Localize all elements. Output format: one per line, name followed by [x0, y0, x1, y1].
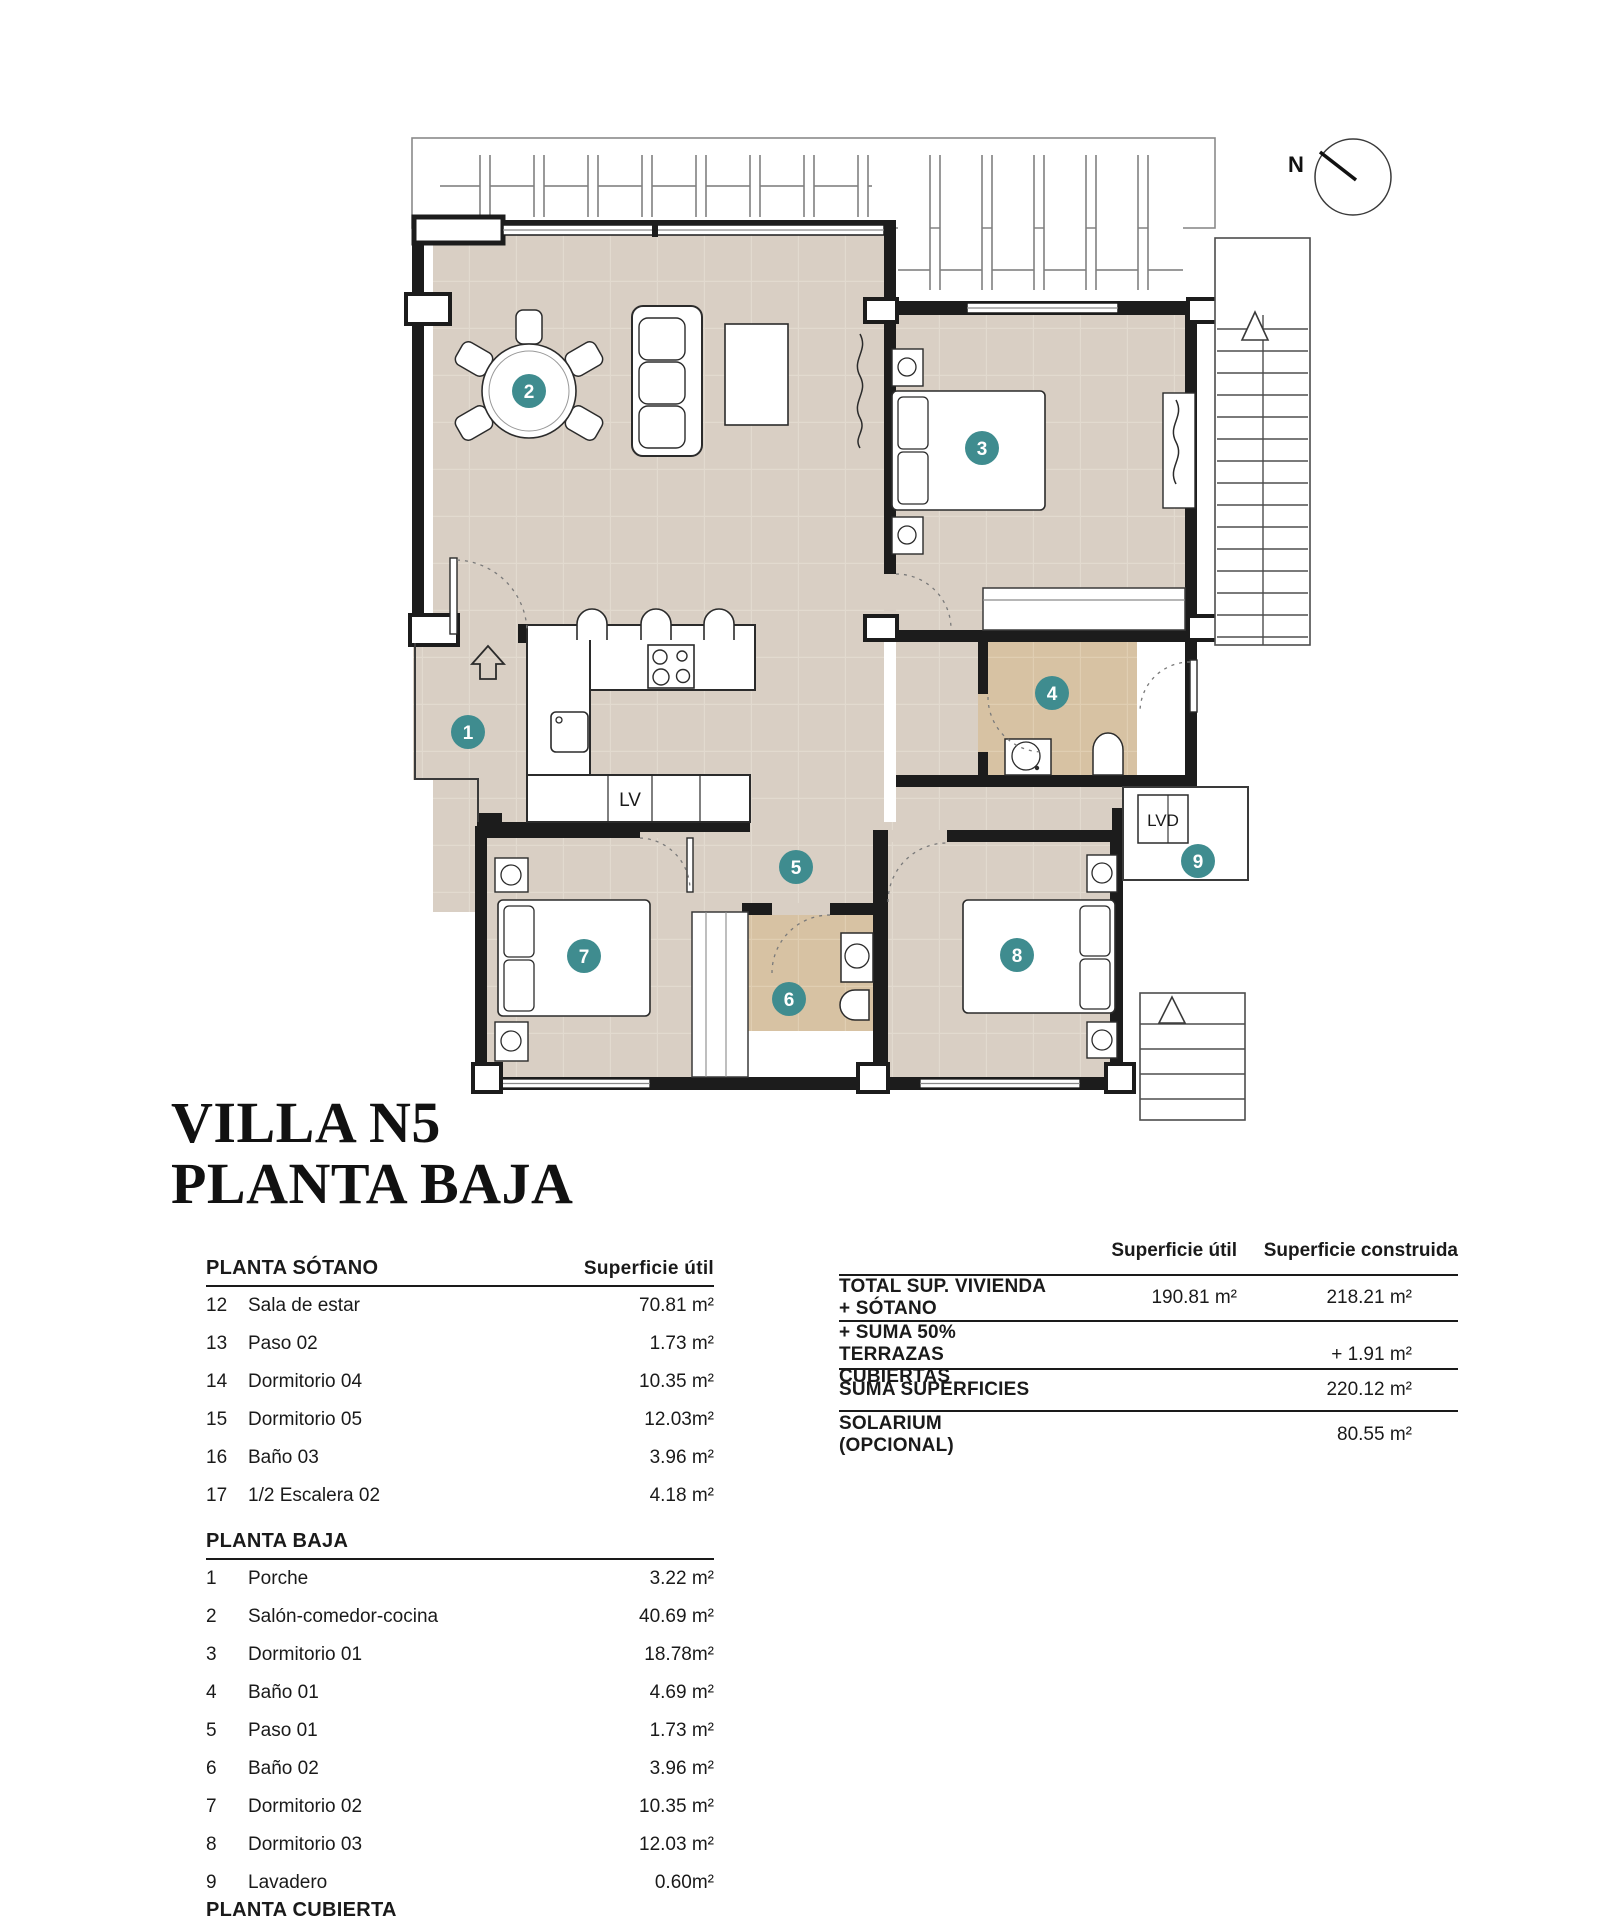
badge-room-1: 1 — [451, 715, 485, 749]
svg-text:2: 2 — [524, 382, 535, 403]
floorplan-page: LV — [0, 0, 1614, 1920]
compass-icon: N — [1288, 139, 1391, 215]
section-header-baja: PLANTA BAJA — [206, 1515, 714, 1560]
badge-room-4: 4 — [1035, 676, 1069, 710]
stairs-upper — [1215, 238, 1310, 645]
svg-text:5: 5 — [791, 858, 802, 879]
table-row: 4Baño 014.69 m² — [206, 1674, 714, 1712]
table-row: 9Lavadero0.60m² — [206, 1864, 714, 1902]
summary-header: Superficie útil Superficie construida — [839, 1240, 1458, 1276]
summary-row-solarium: SOLARIUM (OPCIONAL) 80.55 m² — [839, 1412, 1458, 1458]
table-row: 15Dormitorio 0512.03m² — [206, 1401, 714, 1439]
toilet — [1093, 733, 1123, 775]
svg-text:9: 9 — [1193, 852, 1204, 873]
title-line-1: VILLA N5 — [171, 1092, 573, 1153]
table-row: 3Dormitorio 0118.78m² — [206, 1636, 714, 1674]
wardrobe-strip — [692, 912, 748, 1077]
section-title: PLANTA SÓTANO — [206, 1257, 378, 1280]
porch-floor — [413, 643, 527, 780]
table-row: 13Paso 021.73 m² — [206, 1325, 714, 1363]
section-header-sotano: PLANTA SÓTANO Superficie útil — [206, 1240, 714, 1287]
badge-room-7: 7 — [567, 939, 601, 973]
table-row: 6Baño 023.96 m² — [206, 1750, 714, 1788]
badge-room-5: 5 — [779, 850, 813, 884]
table-row: 1Porche3.22 m² — [206, 1560, 714, 1598]
table-row: 16Baño 033.96 m² — [206, 1439, 714, 1477]
badge-room-6: 6 — [772, 982, 806, 1016]
svg-text:3: 3 — [977, 439, 988, 460]
section-title: PLANTA BAJA — [206, 1530, 348, 1553]
north-label: N — [1288, 152, 1304, 177]
svg-text:4: 4 — [1047, 684, 1058, 705]
washer-label: LVD — [1147, 811, 1179, 830]
pergola-slats-right — [898, 155, 1183, 290]
section-header-cubierta: PLANTA CUBIERTA — [206, 1902, 714, 1920]
page-title: VILLA N5 PLANTA BAJA — [171, 1092, 573, 1214]
table-row: 8Dormitorio 0312.03 m² — [206, 1826, 714, 1864]
dishwasher-label: LV — [619, 790, 641, 811]
svg-text:1: 1 — [463, 723, 474, 744]
table-row: 2Salón-comedor-cocina40.69 m² — [206, 1598, 714, 1636]
svg-text:6: 6 — [784, 990, 795, 1011]
bath-02 — [840, 933, 873, 1020]
table-row: 5Paso 011.73 m² — [206, 1712, 714, 1750]
badge-room-2: 2 — [512, 374, 546, 408]
stairs-lower — [1140, 993, 1245, 1120]
pergola-slats-left — [440, 155, 872, 217]
floor-plan: LV — [0, 0, 1614, 1185]
column-header-util: Superficie útil — [584, 1258, 714, 1280]
svg-text:7: 7 — [579, 947, 590, 968]
summary-row-terrazas: + SUMA 50% TERRAZAS CUBIERTAS + 1.91 m² — [839, 1322, 1458, 1370]
table-row: 171/2 Escalera 024.18 m² — [206, 1477, 714, 1515]
areas-table: PLANTA SÓTANO Superficie útil 12Sala de … — [206, 1240, 714, 1920]
badge-room-9: 9 — [1181, 844, 1215, 878]
column-header-util: Superficie útil — [1058, 1240, 1243, 1262]
table-row: 14Dormitorio 0410.35 m² — [206, 1363, 714, 1401]
stool-icon — [577, 609, 607, 640]
corridor-floor — [896, 642, 980, 787]
badge-room-3: 3 — [965, 431, 999, 465]
section-title: PLANTA CUBIERTA — [206, 1899, 397, 1920]
wardrobe — [983, 588, 1185, 630]
stool-icon — [641, 609, 671, 640]
sofa — [632, 306, 702, 456]
title-line-2: PLANTA BAJA — [171, 1153, 573, 1214]
table-row: 12Sala de estar70.81 m² — [206, 1287, 714, 1325]
stool-icon — [704, 609, 734, 640]
svg-text:8: 8 — [1012, 946, 1023, 967]
summary-row-total: TOTAL SUP. VIVIENDA + SÓTANO 190.81 m² 2… — [839, 1276, 1458, 1322]
badge-room-8: 8 — [1000, 938, 1034, 972]
column-header-construida: Superficie construida — [1243, 1240, 1458, 1262]
summary-table: Superficie útil Superficie construida TO… — [839, 1240, 1458, 1458]
table-row: 7Dormitorio 0210.35 m² — [206, 1788, 714, 1826]
toilet — [840, 990, 869, 1020]
coffee-table — [725, 324, 788, 425]
